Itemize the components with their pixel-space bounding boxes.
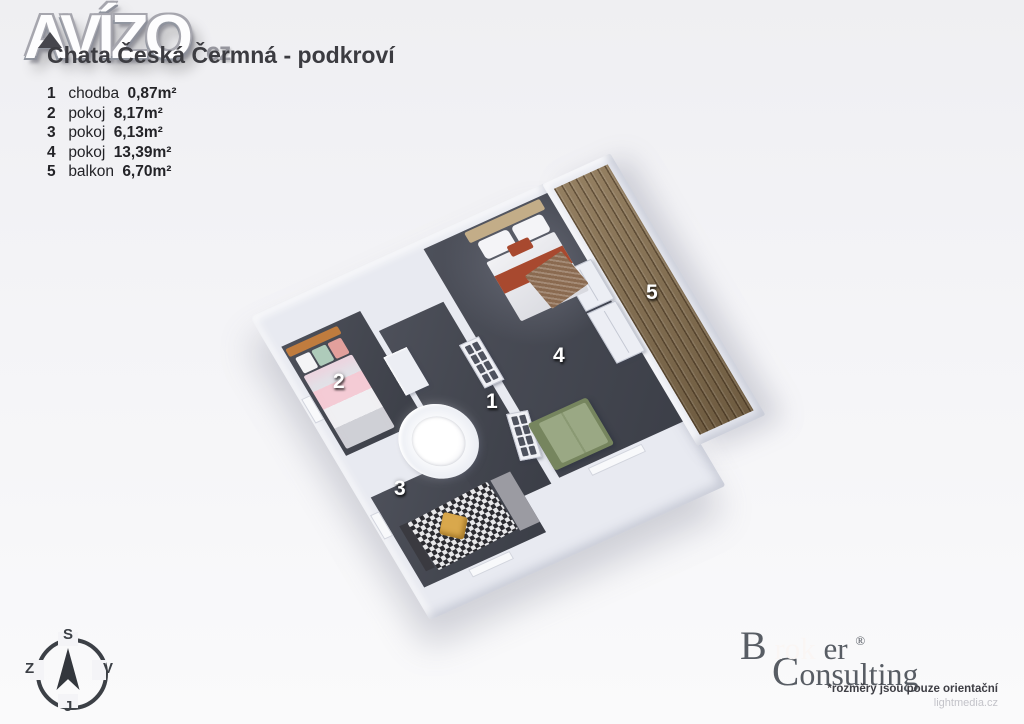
legend-item-5: 5 balkon 6,70m² (47, 162, 177, 182)
stairwell-opening (402, 408, 475, 474)
legend-item-number: 2 (47, 104, 60, 124)
room-label-bedroom2: 2 (333, 370, 345, 394)
legend-item-2: 2 pokoj 8,17m² (47, 104, 177, 124)
room-label-bedroom3: 3 (394, 477, 406, 501)
legend-item-name: pokoj (68, 144, 105, 161)
legend-item-name: pokoj (68, 105, 105, 122)
legend-item-name: pokoj (68, 124, 105, 141)
legend: 1 chodba 0,87m² 2 pokoj 8,17m² 3 pokoj 6… (47, 84, 177, 182)
lightmedia-credit: lightmedia.cz (738, 697, 998, 709)
compass-letter-north: S (63, 626, 73, 643)
legend-item-4: 4 pokoj 13,39m² (47, 143, 177, 163)
legend-item-number: 5 (47, 162, 60, 182)
compass-rose: S V J Z (20, 622, 116, 718)
legend-item-area: 13,39m² (114, 144, 172, 161)
broker-letters-rok: rok (774, 631, 815, 666)
legend-item-area: 6,13m² (114, 124, 163, 141)
broker-consulting-logo: B rok er ® Consulting *rozměry jsou pouz… (738, 626, 998, 709)
compass-letter-west: Z (25, 660, 34, 677)
legend-item-number: 3 (47, 123, 60, 143)
broker-letter-b: B (740, 623, 767, 668)
legend-item-3: 3 pokoj 6,13m² (47, 123, 177, 143)
legend-item-name: balkon (68, 163, 114, 180)
broker-word: B rok er ® (738, 626, 998, 664)
legend-item-area: 6,70m² (122, 163, 171, 180)
legend-item-name: chodba (68, 85, 119, 102)
legend-item-number: 4 (47, 143, 60, 163)
floorplan-3d (250, 152, 793, 620)
compass-letter-south: J (64, 698, 72, 715)
room-label-bedroom4: 4 (553, 344, 565, 368)
legend-item-area: 0,87m² (127, 85, 176, 102)
room-label-balcony: 5 (646, 281, 658, 305)
compass-letter-east: V (103, 660, 113, 677)
page-title: Chata Česká Čermná - podkroví (47, 42, 395, 69)
broker-letters-er: er (824, 631, 848, 666)
legend-item-number: 1 (47, 84, 60, 104)
room-label-hall: 1 (486, 390, 498, 414)
legend-item-area: 8,17m² (114, 105, 163, 122)
legend-item-1: 1 chodba 0,87m² (47, 84, 177, 104)
registered-trademark-icon: ® (855, 633, 865, 648)
